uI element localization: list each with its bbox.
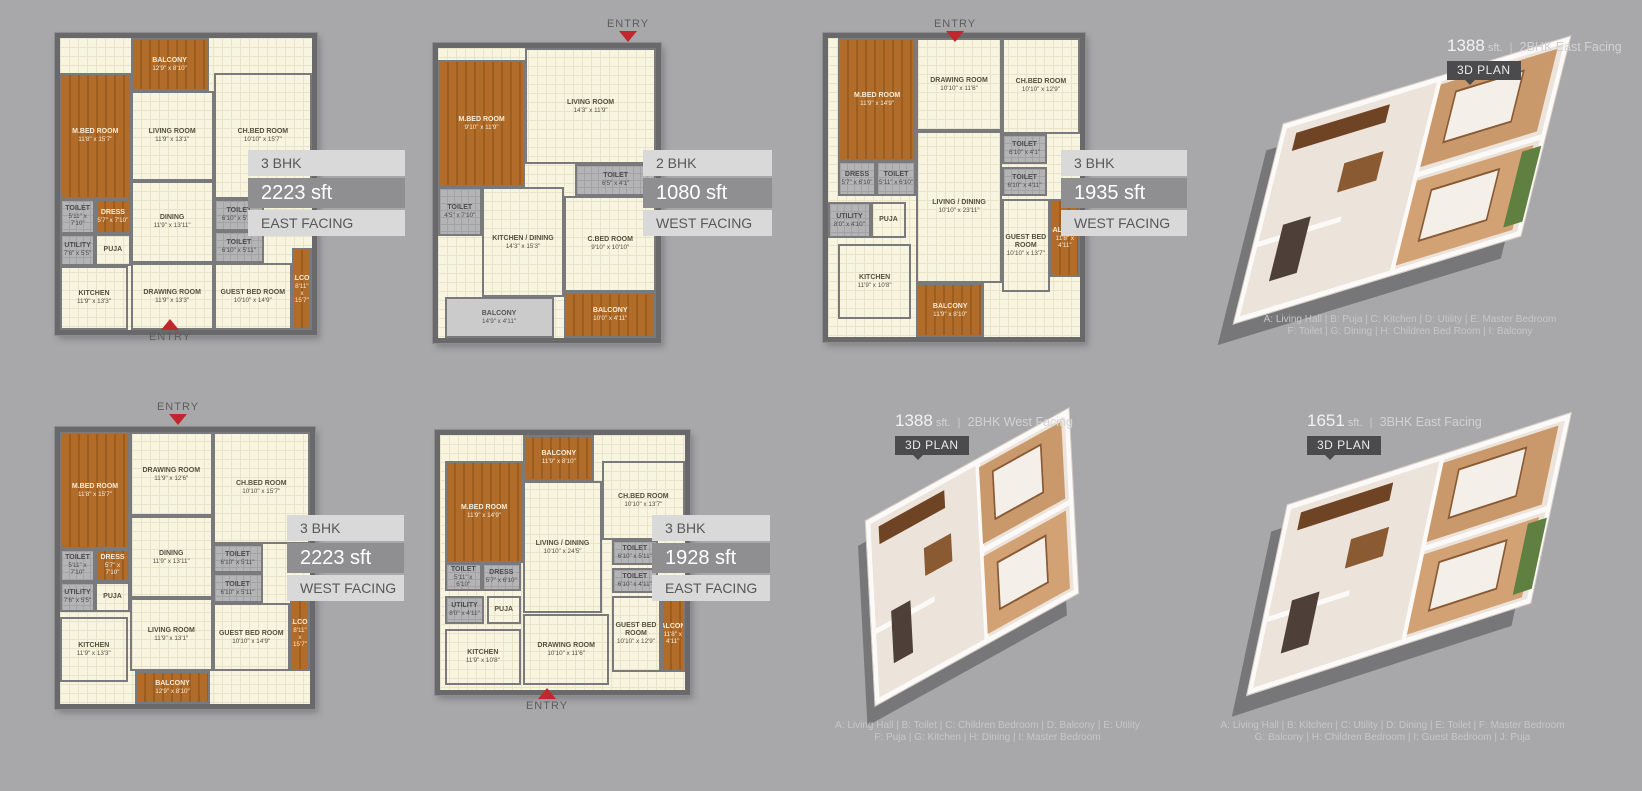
legend-line: F: Puja | G: Kitchen | H: Dining | I: Ma… [820,732,1155,744]
room-name: TOILET [65,205,90,213]
room-m-bed-room: M.BED ROOM11'8" x 15'7" [60,73,131,199]
room-dimensions: 11'9" x 13'3" [77,298,111,305]
room-guest-bed-room: GUEST BED ROOM10'10" x 14'9" [213,603,291,671]
area-unit: sft. [936,417,951,429]
title-separator: | [1370,415,1373,429]
room-dimensions: 12'9" x 8'10" [152,65,187,72]
room-dimensions: 6'10" x 5'11" [220,589,254,596]
3d-plan-image [1222,78,1578,293]
room-living-dining: LIVING / DINING10'10" x 24'5" [523,481,601,614]
room-dimensions: 8'0" x 4'11" [449,610,480,617]
room-dimensions: 9'10" x 11'9" [465,124,499,131]
sofa [1281,591,1320,653]
dining-table [924,533,953,576]
room-dimensions: 9'10" x 10'10" [591,244,629,251]
dining-table [1337,151,1383,193]
plan-label-bands: 3 BHK 1935 sft WEST FACING [1061,150,1187,236]
floor-plan-brochure: BALCONY12'9" x 8'10"M.BED ROOM11'8" x 15… [0,0,1642,791]
entry-label: ENTRY [157,401,199,413]
room-name: UTILITY [64,589,90,597]
entry-arrow-icon [619,31,637,42]
room-name: DRESS [845,171,869,179]
title-separator: | [1510,40,1513,54]
room-name: GUEST BED ROOM [614,622,659,638]
facing-band: EAST FACING [248,210,405,236]
room-drawing-room: DRAWING ROOM10'10" x 11'6" [916,38,1002,131]
3d-plan-badge[interactable]: 3D PLAN [1307,436,1381,455]
room-puja: PUJA [487,596,521,624]
room-dining: DINING11'9" x 13'11" [130,516,213,598]
room-name: M.BED ROOM [458,116,504,124]
bhk-band: 3 BHK [652,515,770,541]
room-dimensions: 4'5" x 7'10" [444,212,475,219]
room-balcony: BALCONY12'9" x 8'10" [135,671,210,704]
room-name: M.BED ROOM [72,483,118,491]
room-name: TOILET [225,581,250,589]
bhk-band: 3 BHK [248,150,405,176]
area-value: 1388 [1447,36,1485,55]
room-name: BALCONY [542,450,577,458]
room-name: BALCONY [593,307,628,315]
room-drawing-room: DRAWING ROOM11'9" x 12'6" [130,432,213,516]
room-name: UTILITY [451,602,477,610]
room-name: LIVING ROOM [567,99,614,107]
entry-arrow-icon [538,688,556,699]
room-dimensions: 5'7" x 6'10" [486,577,517,584]
plan-description: 3BHK East Facing [1380,415,1482,429]
bhk-band: 2 BHK [643,150,772,176]
room-name: TOILET [451,566,476,574]
room-kitchen: KITCHEN11'9" x 13'3" [60,266,128,330]
room-name: TOILET [225,551,250,559]
facing-band: WEST FACING [287,575,404,601]
room-name: TOILET [884,171,909,179]
room-kitchen: KITCHEN11'9" x 13'3" [60,617,128,682]
room-toilet: TOILET6'10" x 4'11" [1002,167,1047,197]
3d-plan-header: 1651sft.|3BHK East Facing 3D PLAN [1307,411,1482,455]
legend-line: F: Toilet | G: Dining | H: Children Bed … [1240,326,1580,338]
3d-plan-legend: A: Living Hall | B: Puja | C: Kitchen | … [1240,314,1580,337]
room-dimensions: 8'11" x 15'7" [294,283,310,304]
room-dimensions: 6'10" x 5'11" [220,559,254,566]
3d-plan-header: 1388sft.|2BHK East Facing 3D PLAN [1447,36,1622,80]
room-name: TOILET [1012,141,1037,149]
room-puja: PUJA [95,582,130,612]
room-balcony: BALCONY11'9" x 8'10" [916,283,984,337]
bhk-band: 3 BHK [1061,150,1187,176]
room-balcony: BALCONY8'11" x 15'7" [290,595,310,671]
room-name: DINING [160,214,185,222]
room-balcony: BALCONY11'8" x 4'11" [661,596,686,673]
entry-arrow-icon [946,31,964,42]
room-dimensions: 5'11" x 7'10" [62,562,93,576]
room-name: BALCONY [155,680,190,688]
room-name: CH.BED ROOM [236,480,287,488]
title-separator: | [958,415,961,429]
room-dimensions: 10'10" x 24'5" [543,548,581,555]
room-name: PUJA [879,216,898,224]
floor-plan-3bhk-2223-west: M.BED ROOM11'8" x 15'7"DRAWING ROOM11'9"… [55,427,315,709]
room-name: DRAWING ROOM [143,289,201,297]
entry-label: ENTRY [607,18,649,30]
room-dimensions: 6'10" x 4'11" [618,581,652,588]
room-dimensions: 11'8" x 4'11" [663,631,684,645]
room-kitchen: KITCHEN11'9" x 10'8" [445,629,521,685]
room-dimensions: 10'10" x 15'7" [244,136,282,143]
entry-marker: ENTRY [140,318,200,343]
room-name: KITCHEN [78,642,109,650]
room-m-bed-room: M.BED ROOM11'9" x 14'9" [838,38,916,161]
room-dimensions: 5'11" x 6'10" [879,179,913,186]
area-band: 1935 sft [1061,178,1187,208]
entry-marker: ENTRY [517,687,577,712]
3d-plan-title: 1651sft.|3BHK East Facing [1307,411,1482,431]
room-name: DRAWING ROOM [930,77,988,85]
room-name: CH.BED ROOM [1016,78,1067,86]
room-dimensions: 6'10" x 5'11" [222,247,256,254]
room-utility: UTILITY7'6" x 5'5" [60,582,95,612]
room-name: BALCONY [152,57,187,65]
room-name: TOILET [65,554,90,562]
room-dress: DRESS5'7" x 7'10" [95,549,130,582]
room-dimensions: 14'3" x 15'3" [506,243,541,250]
room-balcony: BALCONY10'0" x 4'11" [564,292,656,338]
room-toilet: TOILET5'11" x 7'10" [60,549,95,582]
kitchen-counter [1291,104,1390,152]
legend-line: A: Living Hall | B: Toilet | C: Children… [820,720,1155,732]
room-name: DRESS [489,569,513,577]
room-utility: UTILITY8'0" x 4'11" [445,596,484,624]
room-name: DRAWING ROOM [537,642,595,650]
room-name: DRESS [100,554,124,562]
room-name: CH.BED ROOM [618,493,669,501]
room-name: PUJA [103,593,122,601]
3d-plan-title: 1388sft.|2BHK West Facing [895,411,1073,431]
room-dimensions: 11'9" x 10'8" [858,282,892,289]
room-living-room: LIVING ROOM11'9" x 13'1" [130,598,213,671]
room-name: M.BED ROOM [854,92,900,100]
room-name: BALCONY [290,619,310,627]
room-kitchen-dining: KITCHEN / DINING14'3" x 15'3" [482,187,565,297]
3d-plan-image [1222,442,1592,677]
room-m-bed-room: M.BED ROOM11'8" x 15'7" [60,432,130,549]
entry-arrow-icon [169,414,187,425]
room-name: LIVING ROOM [148,627,195,635]
room-name: LIVING / DINING [536,540,590,548]
plan-label-bands: 2 BHK 1080 sft WEST FACING [643,150,772,236]
room-name: KITCHEN / DINING [492,235,553,243]
3d-floorplan-render [1247,413,1571,695]
room-dimensions: 8'0" x 4'10" [834,221,865,228]
entry-label: ENTRY [934,18,976,30]
area-unit: sft. [1348,417,1363,429]
room-dining: DINING11'9" x 13'11" [131,181,214,263]
room-dimensions: 11'9" x 14'9" [467,512,501,519]
room-name: BALCONY [933,303,968,311]
room-dimensions: 11'9" x 13'11" [153,558,190,565]
3d-plan-title: 1388sft.|2BHK East Facing [1447,36,1622,56]
room-name: KITCHEN [859,274,890,282]
room-dimensions: 11'9" x 8'10" [542,458,576,465]
3d-plan-legend: A: Living Hall | B: Toilet | C: Children… [820,720,1155,743]
room-dimensions: 10'10" x 13'7" [1007,250,1045,257]
room-guest-bed-room: GUEST BED ROOM10'10" x 12'9" [612,596,661,673]
3d-plan-badge[interactable]: 3D PLAN [1447,61,1521,80]
room-name: PUJA [494,606,513,614]
room-name: C.BED ROOM [587,236,633,244]
room-name: UTILITY [836,213,862,221]
room-dimensions: 10'10" x 14'9" [234,297,272,304]
entry-arrow-icon [161,319,179,330]
room-balcony: BALCONY12'9" x 8'10" [131,38,209,91]
room-name: TOILET [622,573,647,581]
room-name: UTILITY [64,242,90,250]
bhk-band: 3 BHK [287,515,404,541]
room-dimensions: 5'11" x 7'10" [62,213,93,227]
3d-plan-header: 1388sft.|2BHK West Facing 3D PLAN [895,411,1073,455]
area-band: 2223 sft [248,178,405,208]
dining-table [1345,527,1389,568]
room-m-bed-room: M.BED ROOM11'9" x 14'9" [445,461,523,563]
entry-label: ENTRY [149,331,191,343]
area-band: 1080 sft [643,178,772,208]
room-utility: UTILITY7'6" x 5'5" [60,234,95,266]
room-dimensions: 10'10" x 11'6" [940,85,978,92]
room-balcony: BALCONY14'9" x 4'11" [445,297,554,338]
room-dimensions: 5'7" x 7'10" [97,562,128,576]
plan-description: 2BHK East Facing [1520,40,1622,54]
room-dimensions: 11'8" x 15'7" [78,136,112,143]
room-toilet: TOILET6'10" x 5'11" [213,573,263,603]
room-balcony: BALCONY11'9" x 8'10" [523,435,594,481]
room-name: DINING [159,550,184,558]
room-name: DRAWING ROOM [142,467,200,475]
room-guest-bed-room: GUEST BED ROOM10'10" x 13'7" [1002,199,1050,292]
room-living-room: LIVING ROOM14'3" x 11'9" [525,48,656,164]
room-ch-bed-room: CH.BED ROOM10'10" x 12'9" [1002,38,1080,134]
area-band: 2223 sft [287,543,404,573]
room-toilet: TOILET6'10" x 5'11" [213,544,263,574]
room-guest-bed-room: GUEST BED ROOM10'10" x 14'9" [214,263,292,330]
area-value: 1388 [895,411,933,430]
room-name: KITCHEN [467,649,498,657]
room-name: M.BED ROOM [461,504,507,512]
3d-plan-badge[interactable]: 3D PLAN [895,436,969,455]
room-kitchen: KITCHEN11'9" x 10'8" [838,244,911,319]
entry-marker: ENTRY [598,18,658,43]
room-dimensions: 7'6" x 5'5" [64,250,92,257]
room-name: TOILET [447,204,472,212]
room-name: TOILET [1012,174,1037,182]
plan-label-bands: 3 BHK 2223 sft EAST FACING [248,150,405,236]
room-dimensions: 10'10" x 11'6" [547,650,585,657]
room-toilet: TOILET5'11" x 7'10" [60,199,95,234]
room-dimensions: 11'9" x 13'11" [154,222,191,229]
3d-plan-image [828,442,1133,680]
3d-plan-legend: A: Living Hall | B: Kitchen | C: Utility… [1205,720,1580,743]
room-dimensions: 12'9" x 8'10" [155,688,190,695]
facing-band: WEST FACING [643,210,772,236]
room-name: GUEST BED ROOM [219,630,284,638]
room-toilet: TOILET4'5" x 7'10" [438,187,482,236]
plan-label-bands: 3 BHK 2223 sft WEST FACING [287,515,404,601]
room-dimensions: 10'10" x 12'9" [617,638,655,645]
entry-label: ENTRY [526,700,568,712]
sofa [891,600,913,663]
room-living-room: LIVING ROOM11'9" x 13'1" [131,91,214,182]
room-dress: DRESS5'7" x 6'10" [482,563,521,591]
plan-label-bands: 3 BHK 1928 sft EAST FACING [652,515,770,601]
room-dimensions: 14'3" x 11'9" [574,107,608,114]
room-m-bed-room: M.BED ROOM9'10" x 11'9" [438,60,525,188]
room-dimensions: 6'10" x 5'11" [618,553,652,560]
kitchen-counter [879,490,946,544]
room-name: BALCONY [661,623,686,631]
sofa [1269,217,1311,282]
room-dimensions: 11'9" x 10'8" [466,657,500,664]
room-living-dining: LIVING / DINING10'10" x 23'11" [916,131,1002,283]
room-name: LIVING / DINING [932,199,986,207]
room-drawing-room: DRAWING ROOM10'10" x 11'6" [523,614,609,685]
room-dimensions: 11'9" x 13'1" [154,635,188,642]
floor-plan-3bhk-1935-west: M.BED ROOM11'9" x 14'9"DRAWING ROOM10'10… [823,33,1085,342]
area-band: 1928 sft [652,543,770,573]
room-dimensions: 11'9" x 13'3" [155,297,189,304]
room-balcony: BALCONY8'11" x 15'7" [292,248,312,330]
room-dimensions: 10'0" x 4'11" [593,315,627,322]
room-dimensions: 5'11" x 6'10" [447,574,480,588]
room-dimensions: 14'9" x 4'11" [482,318,516,325]
room-dimensions: 11'9" x 13'3" [77,650,111,657]
room-name: GUEST BED ROOM [1004,234,1048,250]
legend-line: G: Balcony | H: Children Bedroom | I: Gu… [1205,732,1580,744]
room-dimensions: 5'7" x 7'10" [97,217,128,224]
room-dimensions: 11'9" x 8'10" [933,311,967,318]
kitchen-counter [1297,483,1394,531]
room-dimensions: 11'9" x 12'6" [154,475,188,482]
room-name: BALCONY [292,275,312,283]
room-name: BALCONY [482,310,517,318]
room-dimensions: 8'11" x 15'7" [292,627,308,648]
room-dimensions: 10'10" x 15'7" [242,488,280,495]
room-name: TOILET [603,172,628,180]
entry-marker: ENTRY [148,401,208,426]
room-name: TOILET [227,239,252,247]
room-dimensions: 6'10" x 4'1" [1009,149,1040,156]
room-puja: PUJA [95,234,130,266]
room-dimensions: 6'10" x 4'11" [1008,182,1042,189]
room-dress: DRESS5'7" x 7'10" [95,199,130,234]
room-dimensions: 10'10" x 12'9" [1022,86,1060,93]
room-name: M.BED ROOM [72,128,118,136]
area-value: 1651 [1307,411,1345,430]
room-name: CH.BED ROOM [238,128,289,136]
room-utility: UTILITY8'0" x 4'10" [828,202,871,238]
room-dimensions: 10'10" x 23'11" [938,207,979,214]
floor-plan-2bhk-1080-west: LIVING ROOM14'3" x 11'9"M.BED ROOM9'10" … [433,43,661,343]
room-dimensions: 11'8" x 15'7" [78,491,112,498]
room-puja: PUJA [871,202,906,238]
room-name: PUJA [104,246,123,254]
room-name: DRESS [101,209,125,217]
room-dimensions: 11'9" x 14'9" [860,100,894,107]
area-unit: sft. [1488,42,1503,54]
room-toilet: TOILET6'10" x 4'1" [1002,134,1047,164]
legend-line: A: Living Hall | B: Puja | C: Kitchen | … [1240,314,1580,326]
room-dimensions: 5'7" x 6'10" [841,179,872,186]
room-dimensions: 11'9" x 13'1" [155,136,189,143]
room-name: LIVING ROOM [149,128,196,136]
room-toilet: TOILET5'11" x 6'10" [876,161,916,197]
room-name: TOILET [622,545,647,553]
room-dimensions: 7'6" x 5'5" [64,597,92,604]
room-dress: DRESS5'7" x 6'10" [838,161,876,197]
room-dimensions: 6'5" x 4'1" [602,180,630,187]
room-name: KITCHEN [78,290,109,298]
plan-description: 2BHK West Facing [968,415,1073,429]
room-dimensions: 10'10" x 14'9" [232,638,270,645]
room-toilet: TOILET5'11" x 6'10" [445,563,482,591]
room-dimensions: 11'8" x 4'11" [1052,235,1078,249]
room-dimensions: 10'10" x 13'7" [624,501,662,508]
facing-band: WEST FACING [1061,210,1187,236]
facing-band: EAST FACING [652,575,770,601]
entry-marker: ENTRY [925,18,985,43]
room-name: GUEST BED ROOM [220,289,285,297]
legend-line: A: Living Hall | B: Kitchen | C: Utility… [1205,720,1580,732]
